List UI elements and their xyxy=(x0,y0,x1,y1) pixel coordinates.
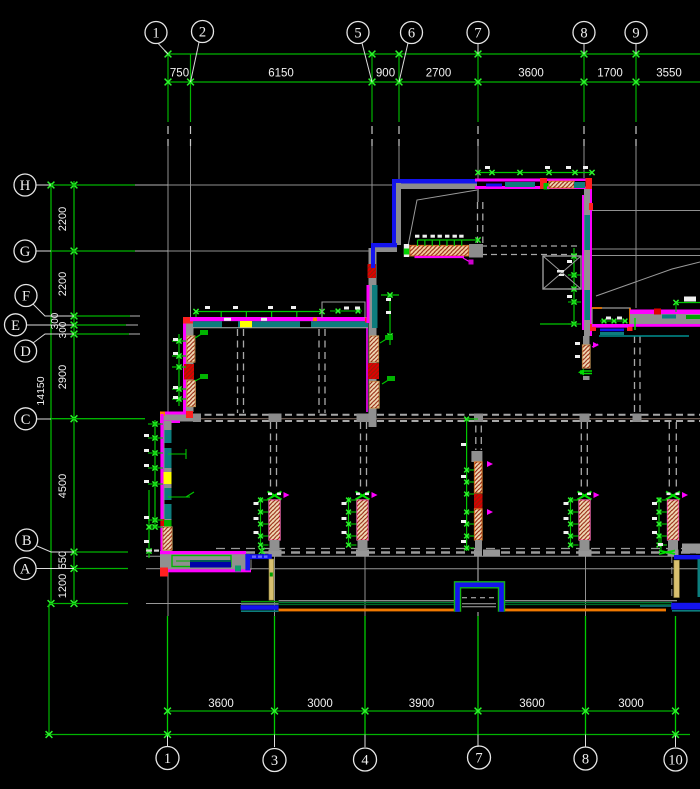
svg-text:4500: 4500 xyxy=(57,474,69,498)
svg-text:3900: 3900 xyxy=(409,698,435,710)
svg-text:H: H xyxy=(20,178,31,194)
svg-text:550: 550 xyxy=(57,551,69,569)
svg-text:1: 1 xyxy=(164,751,171,767)
svg-text:3600: 3600 xyxy=(208,698,234,710)
svg-text:2900: 2900 xyxy=(57,365,69,389)
svg-text:2: 2 xyxy=(199,25,206,41)
svg-text:3600: 3600 xyxy=(518,68,544,80)
svg-text:4: 4 xyxy=(361,753,369,769)
svg-text:300: 300 xyxy=(58,321,69,338)
svg-text:8: 8 xyxy=(580,26,587,42)
svg-text:7: 7 xyxy=(474,26,481,42)
svg-text:10: 10 xyxy=(668,753,683,769)
svg-text:A: A xyxy=(20,562,31,578)
svg-text:900: 900 xyxy=(376,68,395,80)
svg-text:D: D xyxy=(20,344,30,360)
svg-text:2700: 2700 xyxy=(426,68,452,80)
svg-text:9: 9 xyxy=(632,26,639,42)
svg-text:3: 3 xyxy=(271,753,278,769)
svg-text:G: G xyxy=(20,244,31,260)
svg-text:14150: 14150 xyxy=(35,376,47,405)
svg-text:F: F xyxy=(22,289,30,305)
svg-text:6: 6 xyxy=(408,26,415,42)
svg-text:2200: 2200 xyxy=(57,207,69,231)
svg-text:3000: 3000 xyxy=(618,698,644,710)
svg-text:1700: 1700 xyxy=(597,68,623,80)
svg-text:1200: 1200 xyxy=(57,574,69,598)
svg-text:B: B xyxy=(22,533,32,549)
svg-text:3000: 3000 xyxy=(307,698,333,710)
svg-text:6150: 6150 xyxy=(268,68,294,80)
svg-text:1: 1 xyxy=(152,26,159,42)
svg-text:C: C xyxy=(21,412,31,428)
svg-text:3600: 3600 xyxy=(519,698,545,710)
svg-text:2200: 2200 xyxy=(57,272,69,296)
svg-text:3550: 3550 xyxy=(656,68,682,80)
svg-text:750: 750 xyxy=(170,68,189,80)
svg-text:7: 7 xyxy=(475,751,482,767)
svg-text:E: E xyxy=(11,318,20,334)
svg-text:8: 8 xyxy=(582,752,589,768)
svg-text:5: 5 xyxy=(354,26,361,42)
